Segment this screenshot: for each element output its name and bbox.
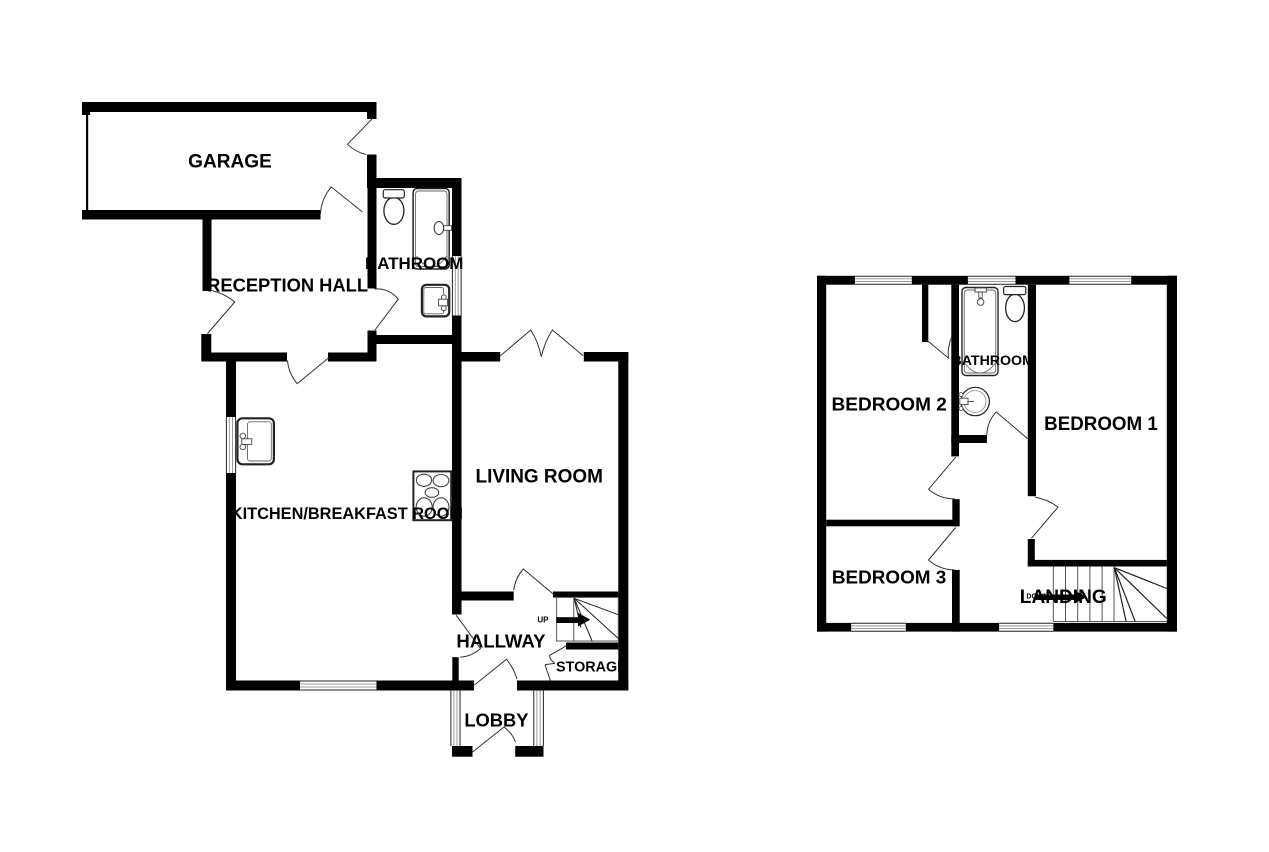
- svg-text:GARAGE: GARAGE: [188, 152, 272, 173]
- svg-text:UP: UP: [537, 615, 549, 624]
- svg-text:BEDROOM 2: BEDROOM 2: [832, 395, 947, 416]
- svg-text:BATHROOM: BATHROOM: [365, 254, 463, 273]
- svg-text:LIVING ROOM: LIVING ROOM: [476, 466, 603, 487]
- svg-text:KITCHEN/BREAKFAST ROOM: KITCHEN/BREAKFAST ROOM: [231, 505, 463, 523]
- svg-text:BATHROOM: BATHROOM: [952, 352, 1034, 368]
- svg-text:HALLWAY: HALLWAY: [456, 631, 546, 652]
- svg-text:BEDROOM 1: BEDROOM 1: [1044, 414, 1158, 435]
- svg-text:BEDROOM 3: BEDROOM 3: [832, 568, 946, 589]
- svg-text:LOBBY: LOBBY: [464, 709, 528, 730]
- svg-text:STORAGE: STORAGE: [556, 660, 627, 676]
- svg-text:RECEPTION HALL: RECEPTION HALL: [207, 274, 368, 295]
